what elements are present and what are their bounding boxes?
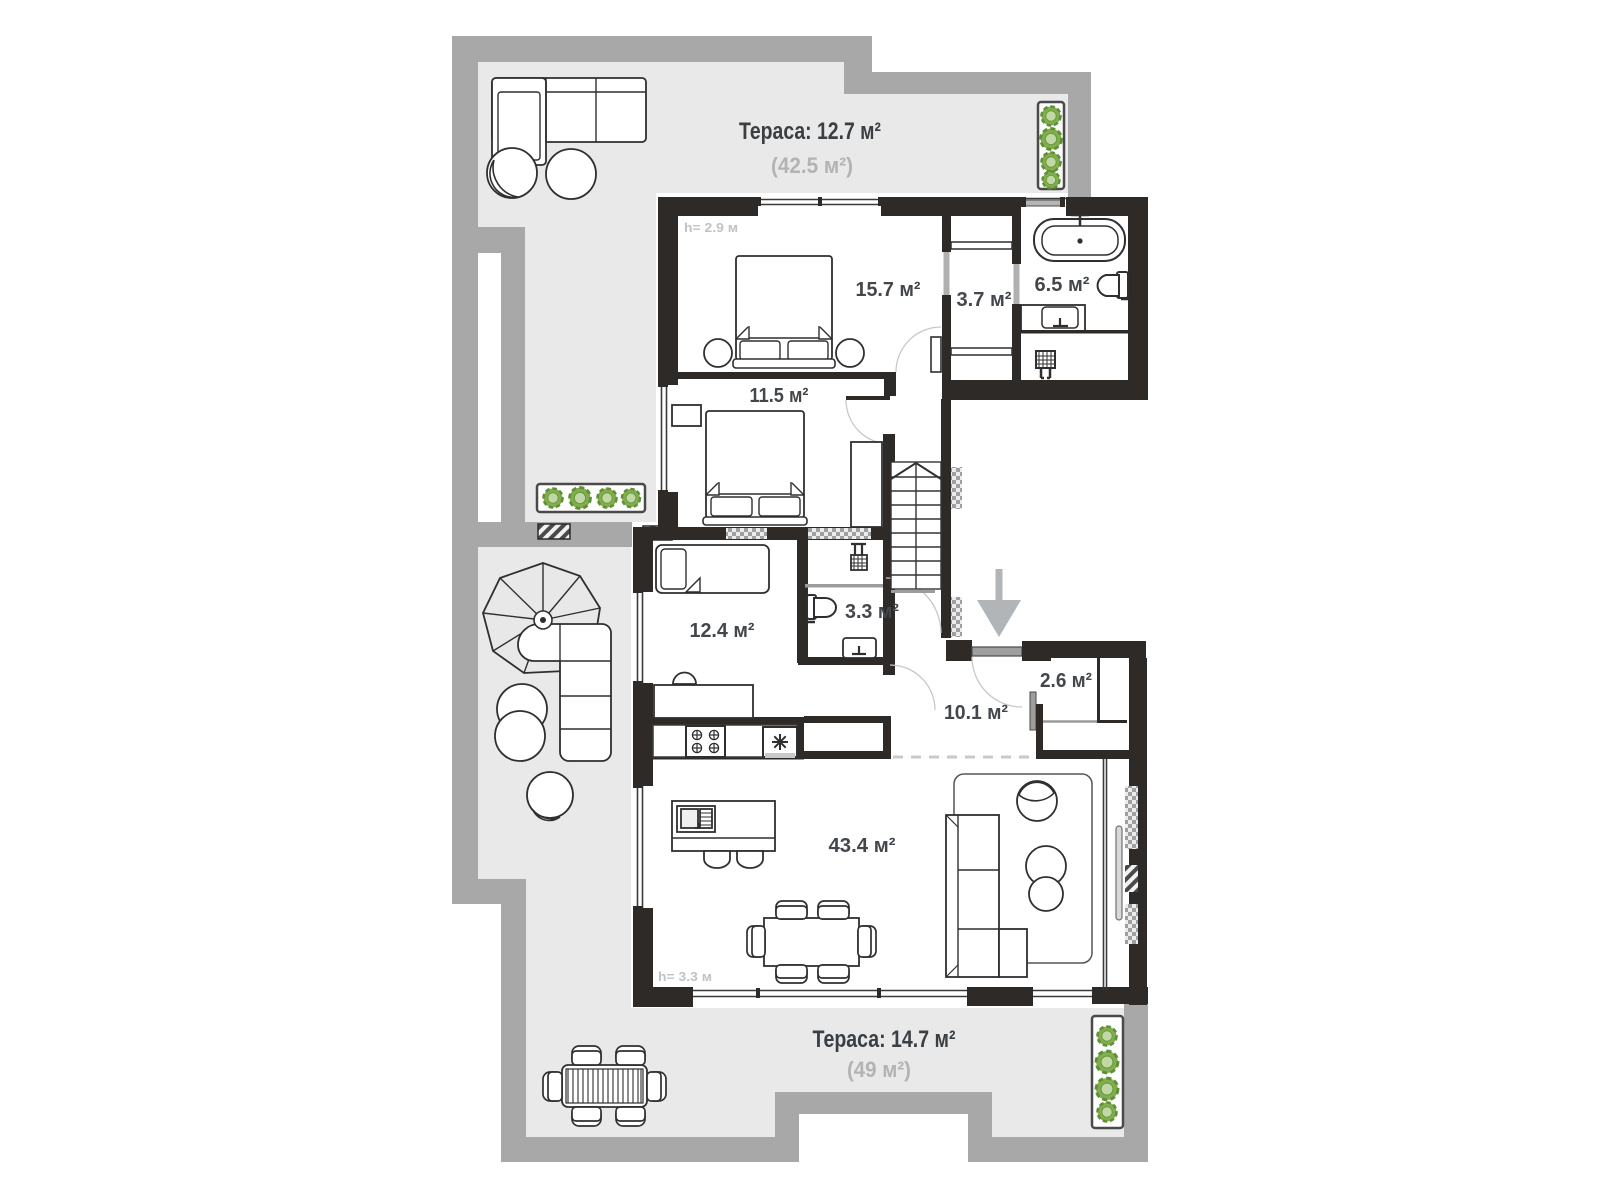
svg-text:6.5 м²: 6.5 м² [1035,274,1090,296]
svg-text:11.5 м²: 11.5 м² [750,385,809,407]
svg-text:h= 3.3 м: h= 3.3 м [658,969,712,984]
svg-text:10.1 м²: 10.1 м² [944,702,1008,724]
svg-text:3.3 м²: 3.3 м² [845,601,899,623]
svg-text:12.4 м²: 12.4 м² [690,620,755,642]
svg-text:Тераса: 14.7 м²: Тераса: 14.7 м² [813,1026,956,1053]
svg-text:15.7 м²: 15.7 м² [856,279,921,301]
svg-text:3.7 м²: 3.7 м² [957,289,1012,311]
svg-text:h= 2.9 м: h= 2.9 м [684,220,738,235]
svg-text:(49 м²): (49 м²) [847,1057,911,1082]
svg-text:Тераса: 12.7 м²: Тераса: 12.7 м² [739,118,881,145]
svg-text:2.6 м²: 2.6 м² [1040,670,1092,692]
svg-text:(42.5 м²): (42.5 м²) [771,153,853,178]
svg-text:43.4 м²: 43.4 м² [829,835,896,857]
